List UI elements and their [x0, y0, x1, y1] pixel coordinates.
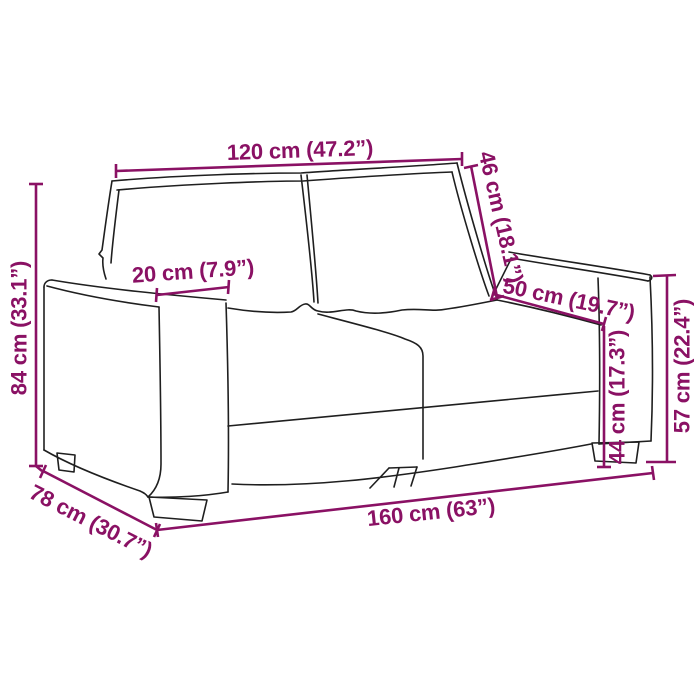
dimension-extension [653, 275, 676, 276]
dimension-label-total-height: 84 cm (33.1”) [7, 261, 32, 395]
dimension-label-armrest-height: 57 cm (22.4”) [670, 299, 695, 433]
diagram-background [0, 0, 700, 700]
dimension-label-seat-height: 44 cm (17.3”) [605, 330, 630, 464]
center-leg-top-bar [389, 467, 417, 468]
dimension-tick [228, 280, 229, 294]
sofa-dimension-diagram: 120 cm (47.2”) 46 cm (18.1”) 20 cm (7.9”… [0, 0, 700, 700]
dimension-label-seat-width: 120 cm (47.2”) [226, 135, 373, 165]
dimension-tick [156, 288, 157, 302]
